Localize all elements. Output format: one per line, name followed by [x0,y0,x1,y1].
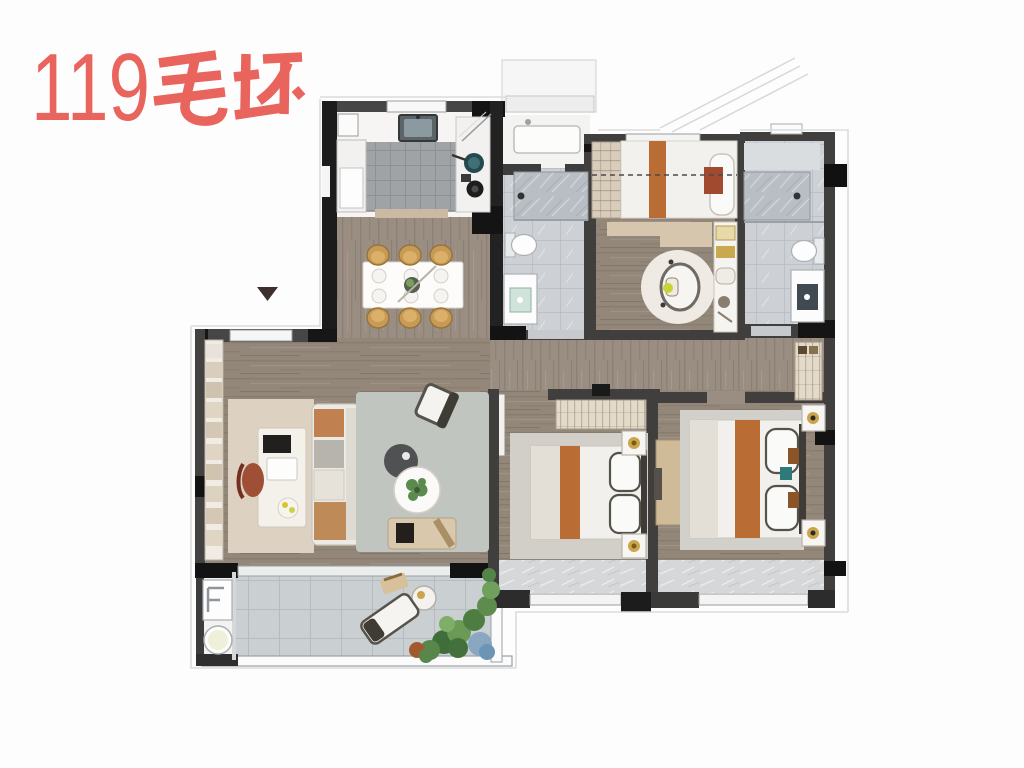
svg-text:119: 119 [31,34,150,141]
